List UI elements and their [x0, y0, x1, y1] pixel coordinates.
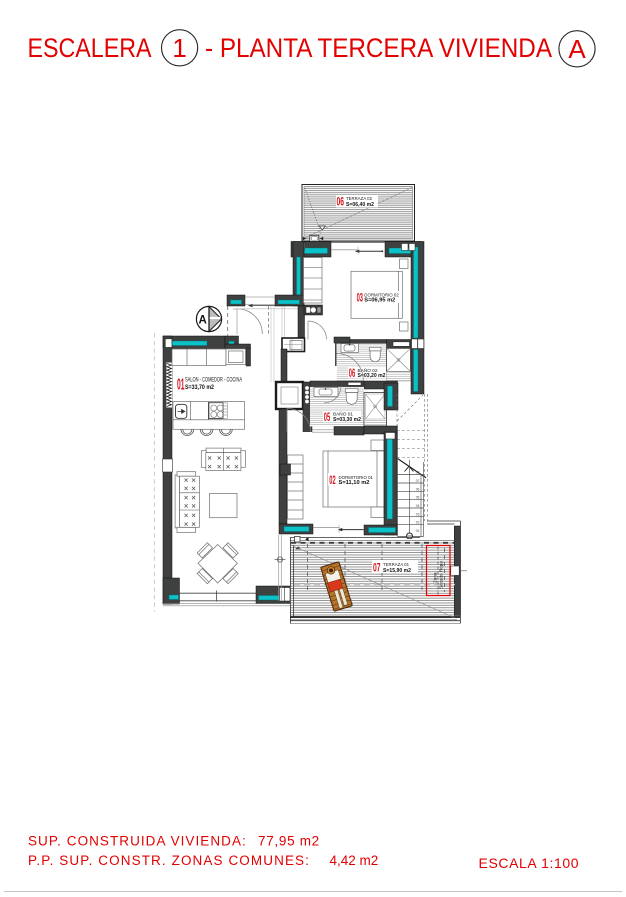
svg-text:01: 01 [177, 376, 185, 393]
svg-text:SALON - COMEDOR - COCINA: SALON - COMEDOR - COCINA [185, 377, 243, 384]
svg-text:- PLANTA TERCERA VIVIENDA: - PLANTA TERCERA VIVIENDA [205, 33, 552, 63]
svg-text:01: 01 [416, 529, 420, 533]
svg-text:02: 02 [329, 473, 335, 487]
svg-text:06: 06 [416, 487, 420, 491]
svg-text:08: 08 [416, 471, 420, 475]
svg-text:P.P. SUP. CONSTR. ZONAS COMUNE: P.P. SUP. CONSTR. ZONAS COMUNES: [28, 853, 310, 868]
svg-text:BAÑO 01: BAÑO 01 [333, 412, 354, 417]
svg-text:77,95 m2: 77,95 m2 [258, 834, 320, 849]
svg-text:A: A [568, 34, 586, 64]
svg-text:03: 03 [357, 290, 363, 304]
svg-text:4,42 m2: 4,42 m2 [330, 853, 379, 868]
svg-text:DORMITORIO 01: DORMITORIO 01 [339, 475, 374, 480]
svg-text:S=11,10 m2: S=11,10 m2 [339, 480, 370, 486]
svg-text:05: 05 [324, 410, 330, 424]
svg-text:06: 06 [349, 366, 355, 380]
svg-text:S=06,95 m2: S=06,95 m2 [364, 298, 395, 304]
svg-text:ESCALA 1:100: ESCALA 1:100 [479, 855, 580, 871]
svg-text:S=03,20 m2: S=03,20 m2 [358, 373, 386, 379]
svg-text:S=33,70 m2: S=33,70 m2 [185, 384, 214, 391]
svg-text:06: 06 [337, 195, 345, 208]
svg-text:ESCALERA: ESCALERA [28, 33, 152, 63]
svg-text:07: 07 [373, 561, 381, 574]
svg-text:02: 02 [416, 521, 420, 525]
svg-text:1: 1 [172, 33, 186, 63]
svg-text:A: A [199, 315, 207, 327]
svg-text:07: 07 [416, 479, 420, 483]
svg-text:S=03,30 m2: S=03,30 m2 [333, 417, 361, 423]
svg-text:SUP. CONSTRUIDA VIVIENDA:: SUP. CONSTRUIDA VIVIENDA: [28, 834, 247, 849]
svg-text:TERRAZA 02: TERRAZA 02 [346, 196, 373, 201]
svg-text:Zona: Zona [432, 572, 437, 583]
svg-text:05: 05 [416, 496, 420, 500]
svg-text:TERRAZA 01: TERRAZA 01 [383, 562, 410, 567]
svg-text:S=06,40 m2: S=06,40 m2 [346, 202, 374, 208]
svg-text:04: 04 [416, 504, 420, 508]
svg-text:03: 03 [416, 512, 420, 516]
svg-text:S=15,90 m2: S=15,90 m2 [383, 568, 411, 574]
svg-text:Secado Ropa: Secado Ropa [438, 561, 443, 589]
